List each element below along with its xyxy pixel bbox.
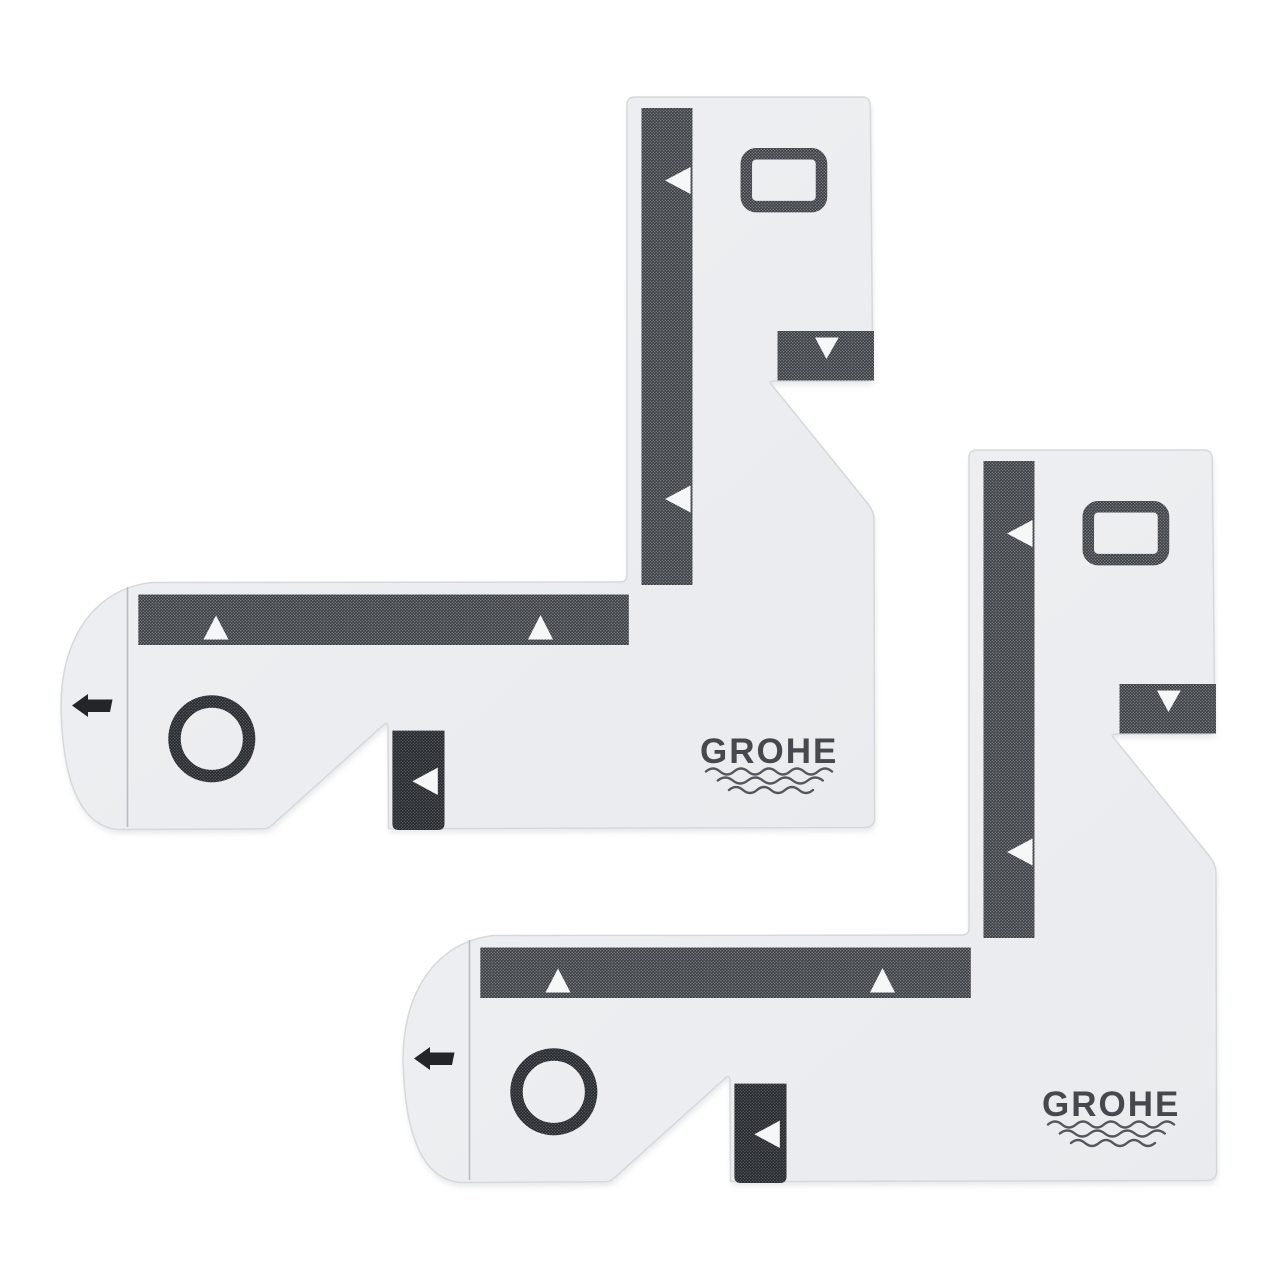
svg-text:GROHE: GROHE [700,732,838,771]
